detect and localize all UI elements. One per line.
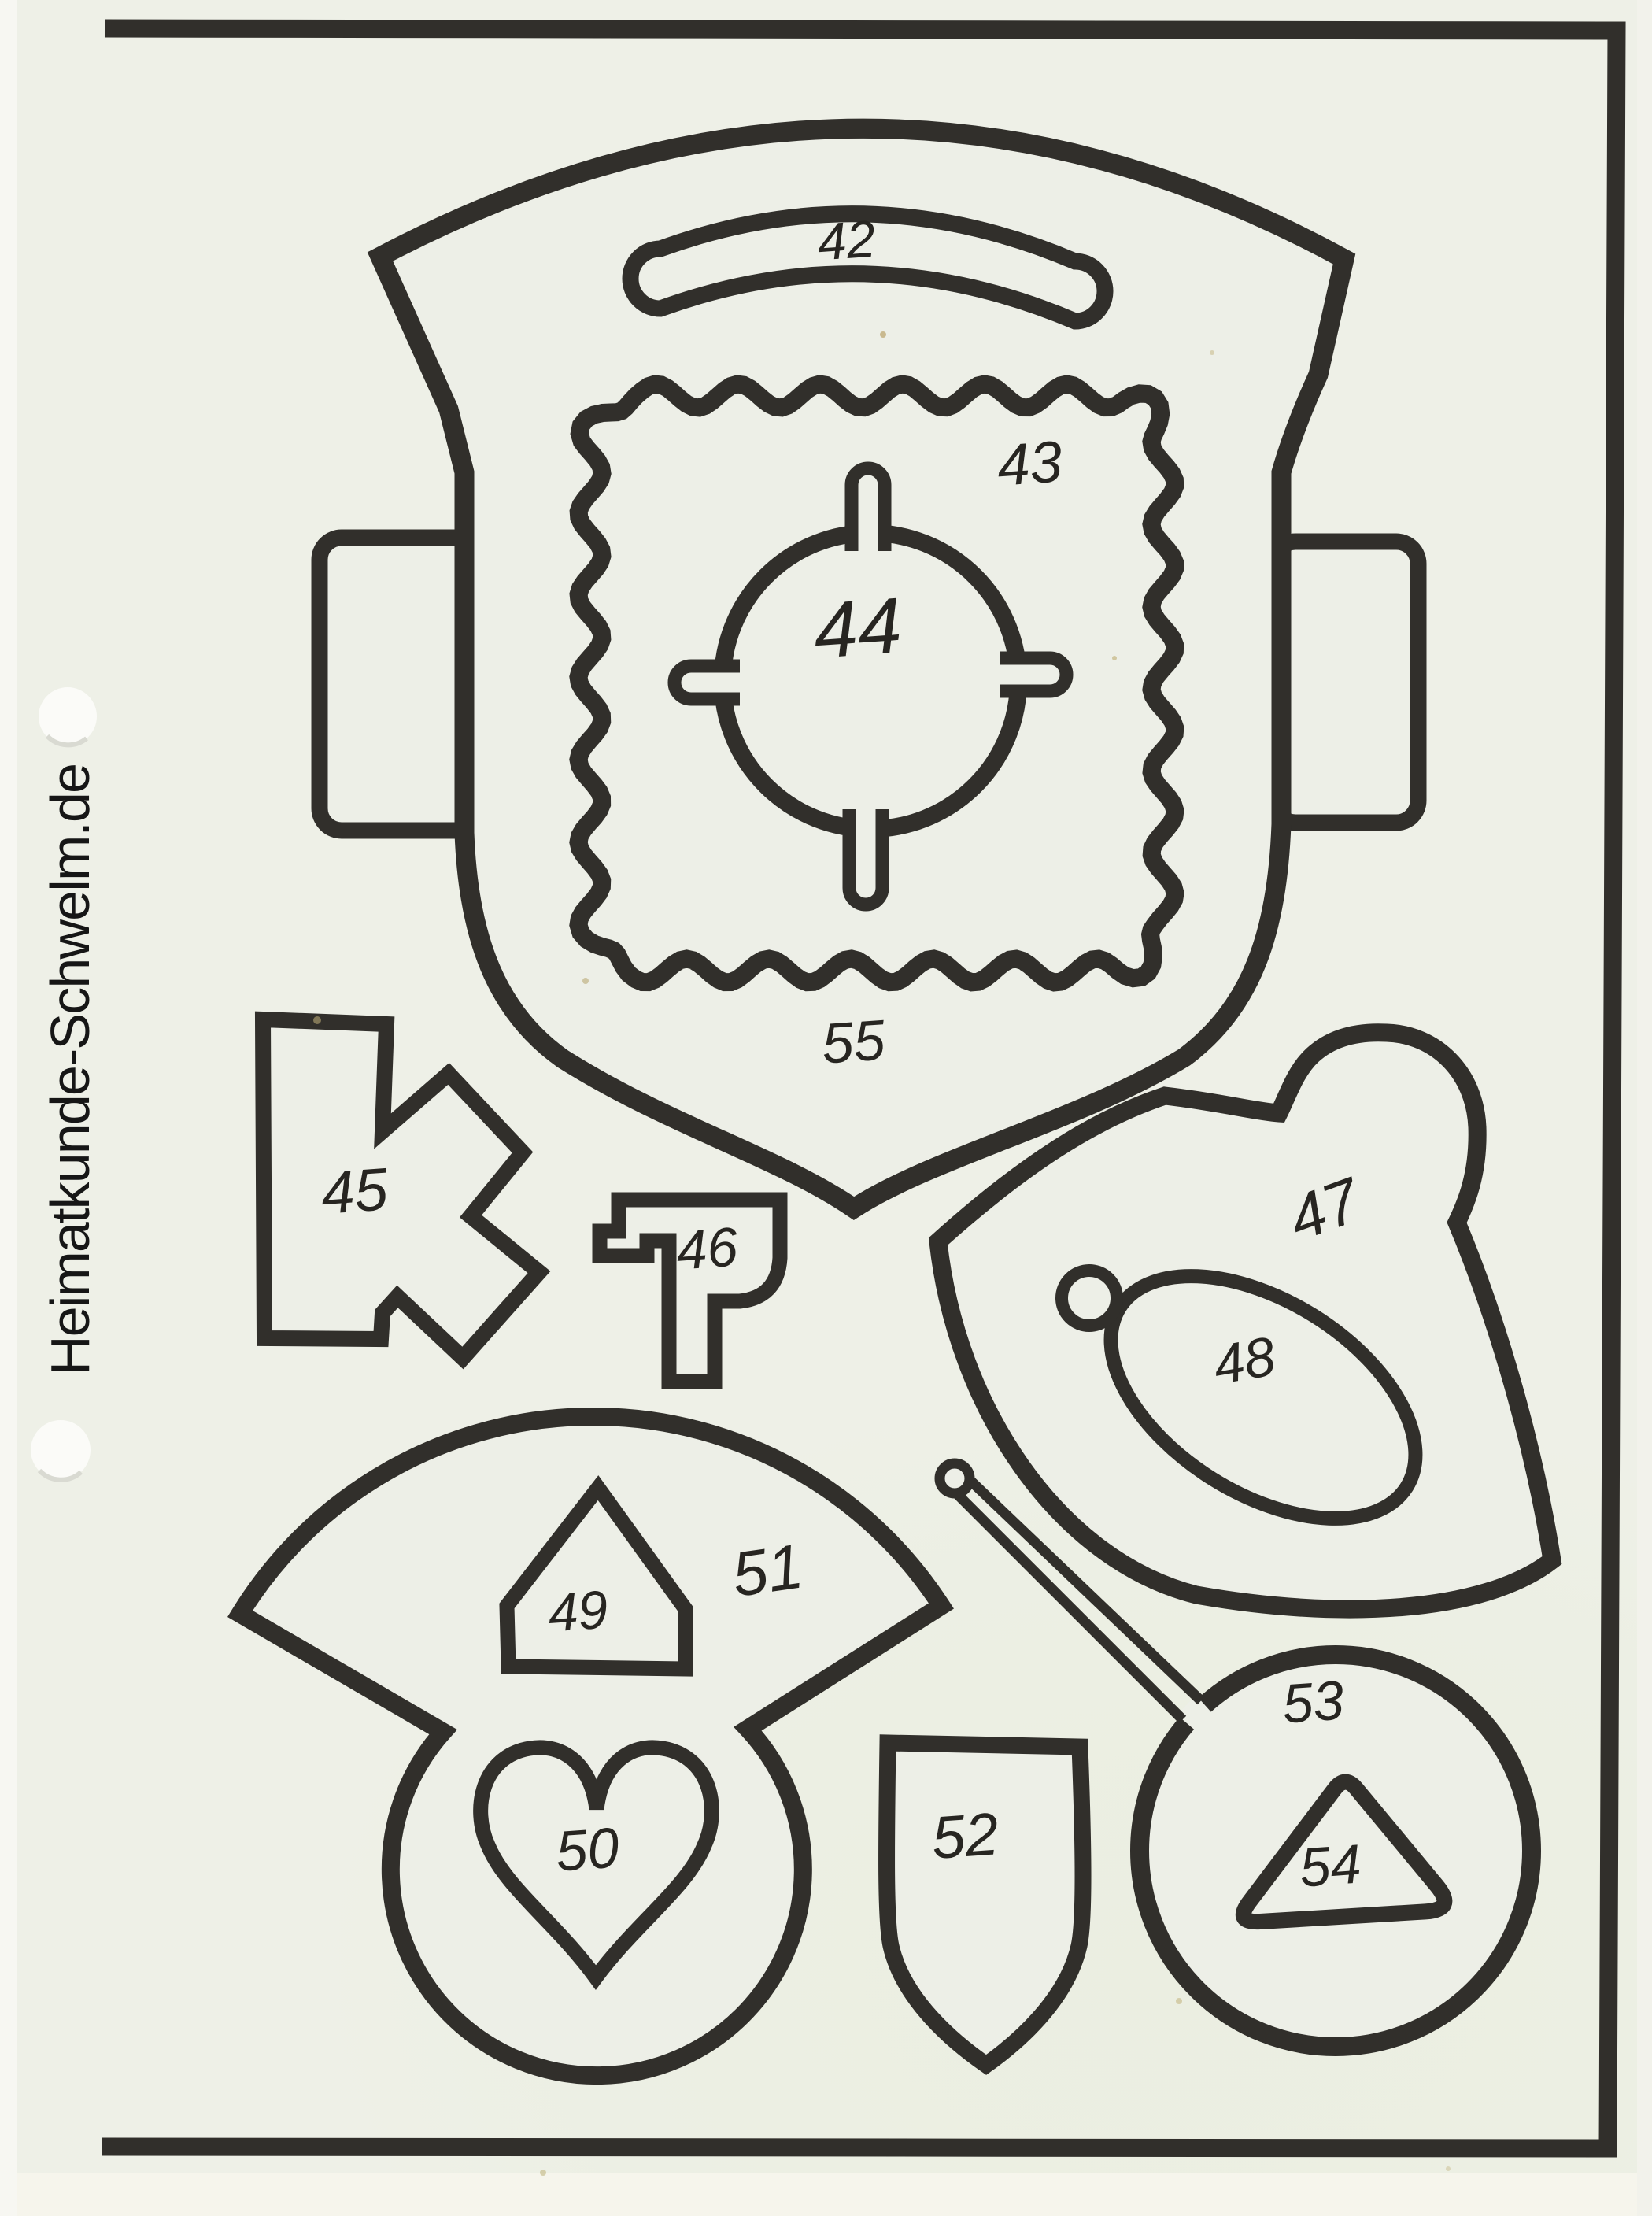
svg-text:55: 55: [820, 1008, 888, 1075]
svg-text:48: 48: [1209, 1325, 1280, 1396]
svg-text:52: 52: [929, 1800, 1000, 1872]
svg-text:44: 44: [811, 581, 904, 675]
svg-text:Heimatkunde-Schwelm.de: Heimatkunde-Schwelm.de: [39, 763, 101, 1375]
svg-text:51: 51: [728, 1531, 808, 1611]
svg-text:45: 45: [319, 1156, 390, 1227]
svg-text:54: 54: [1298, 1833, 1363, 1898]
svg-text:46: 46: [674, 1215, 740, 1281]
svg-text:49: 49: [546, 1580, 610, 1644]
svg-text:50: 50: [554, 1816, 621, 1883]
svg-text:53: 53: [1281, 1669, 1346, 1734]
svg-text:42: 42: [815, 209, 877, 272]
svg-text:43: 43: [995, 428, 1064, 498]
